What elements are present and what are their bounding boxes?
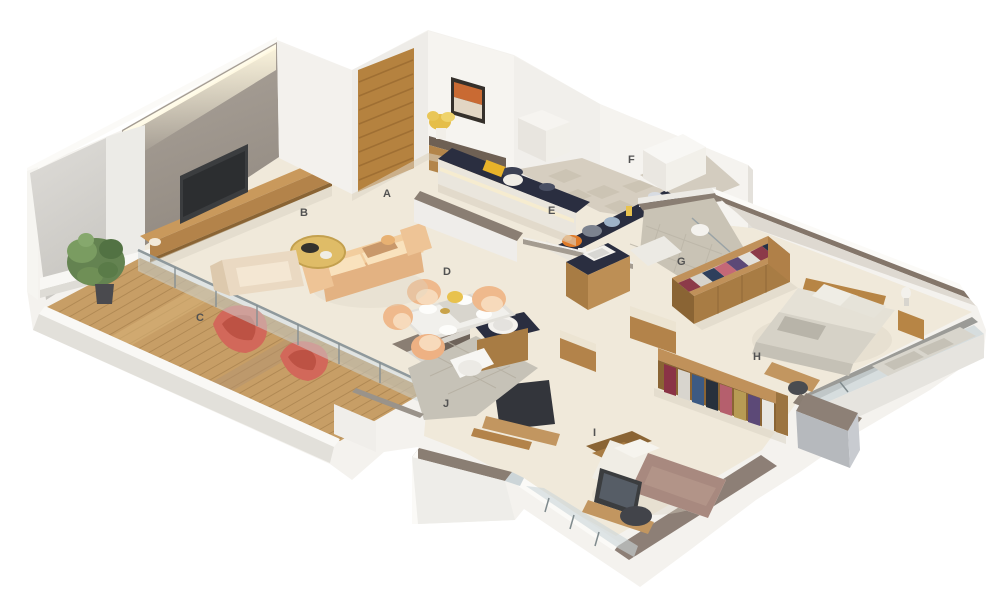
svg-text:I: I — [593, 427, 596, 439]
svg-text:F: F — [628, 154, 635, 166]
svg-text:G: G — [677, 256, 686, 268]
svg-text:D: D — [443, 266, 451, 278]
svg-text:C: C — [196, 312, 204, 324]
svg-text:J: J — [443, 398, 449, 410]
svg-text:A: A — [383, 188, 391, 200]
svg-text:E: E — [548, 205, 555, 217]
svg-text:H: H — [753, 351, 761, 363]
svg-text:B: B — [300, 207, 308, 219]
